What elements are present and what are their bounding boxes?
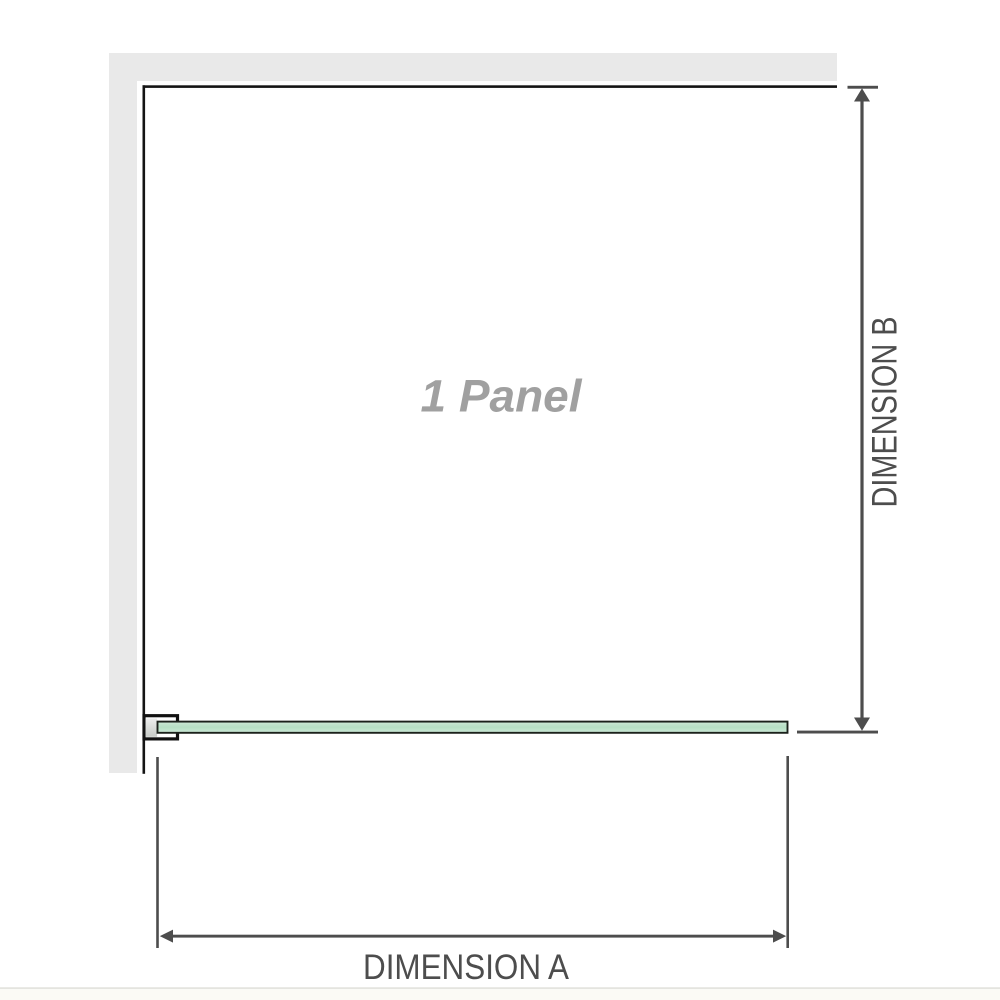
svg-text:DIMENSION B: DIMENSION B <box>865 317 905 508</box>
svg-text:1 Panel: 1 Panel <box>421 371 584 422</box>
svg-text:DIMENSION A: DIMENSION A <box>363 947 569 987</box>
